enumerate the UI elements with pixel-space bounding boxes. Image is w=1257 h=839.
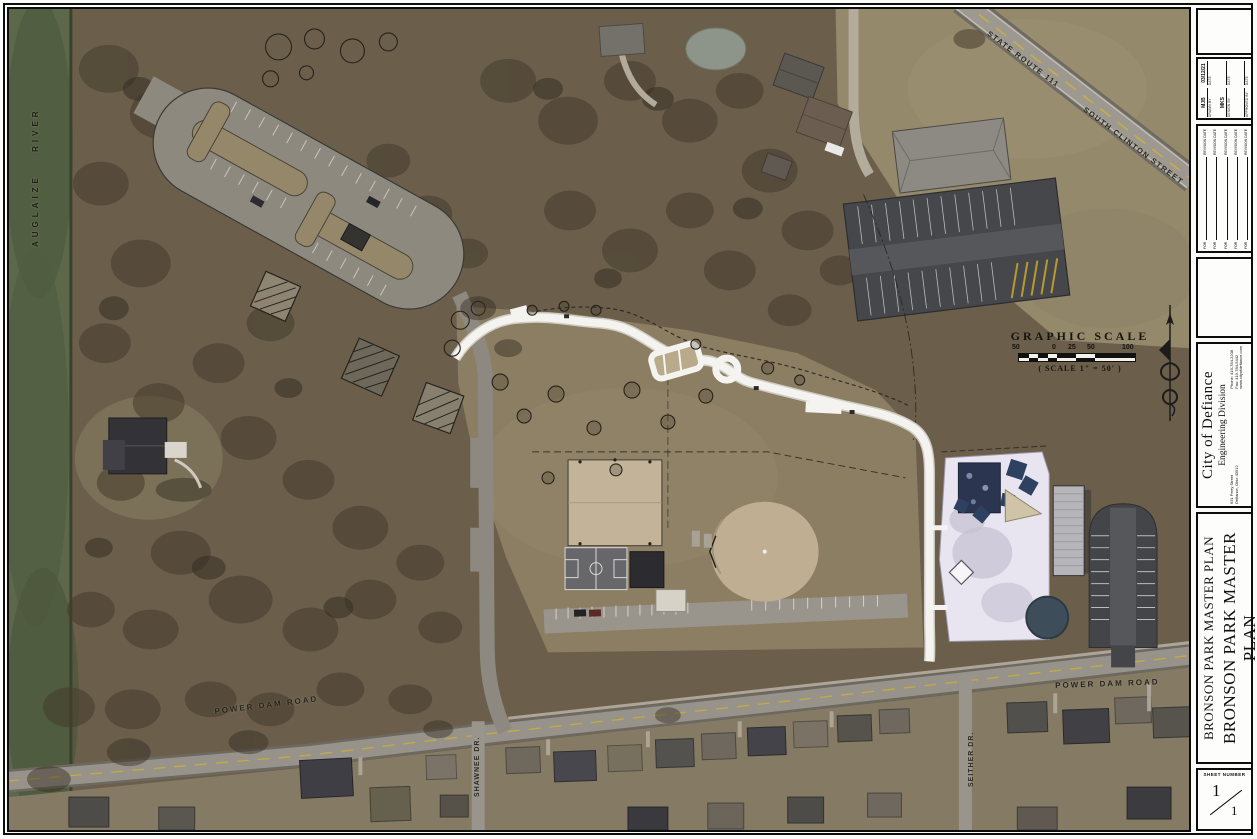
scale-note: ( SCALE 1" = 50' ) [1004, 364, 1156, 373]
aerial-plan-graphic [9, 9, 1189, 830]
sheet-title: BRONSON PARK MASTER PLAN [1220, 516, 1257, 760]
scale-tick: 50 [1087, 344, 1095, 351]
revision-row: FOR REVISION DATE [1202, 129, 1207, 249]
graphic-scale-bar [1018, 353, 1136, 362]
design-by-label: DESIGN BY [1226, 88, 1230, 117]
drawn-by-label: DRAWN BY [1208, 88, 1212, 117]
design-date-label: DATE [1226, 61, 1230, 85]
revision-for-label: FOR [1244, 241, 1248, 248]
drawn-by-value: MJB [1201, 88, 1208, 117]
titleblock-revisions-box: FOR REVISION DATE FOR REVISION DATE FOR … [1196, 124, 1253, 253]
scale-tick: 25 [1068, 344, 1076, 351]
revision-date-label: REVISION DATE [1203, 129, 1207, 155]
river-label: AUGLAIZE RIVER [31, 107, 40, 247]
drawn-by-row: MJB DRAWN BY 03/12/21 DATE [1201, 61, 1212, 117]
revision-line [1212, 156, 1217, 239]
agency-website: www.cityofdefiance.com [1239, 346, 1244, 389]
revision-line [1222, 156, 1227, 239]
design-by-value: MKS [1219, 88, 1226, 117]
sheet-number-denominator: 1 [1231, 803, 1238, 819]
graphic-scale: GRAPHIC SCALE 50 0 25 50 100 [1004, 329, 1156, 373]
scale-tick: 50 [1012, 344, 1020, 351]
commercial-parking-lot [843, 178, 1069, 321]
agency-address-line2: Defiance, Ohio 43512 [1234, 465, 1239, 504]
sheet-number-box: SHEET NUMBER 1 1 [1196, 768, 1253, 831]
titleblock-spare-box [1196, 8, 1253, 55]
north-arrow-icon [1155, 305, 1185, 421]
graphic-scale-title: GRAPHIC SCALE [1004, 329, 1156, 344]
titleblock-spare-box-2 [1196, 257, 1253, 338]
revision-for-label: FOR [1223, 241, 1227, 248]
titleblock-agency-box: City of Defiance Engineering Division 63… [1196, 342, 1253, 508]
sheet-number-numerator: 1 [1212, 781, 1221, 801]
revision-line [1243, 156, 1248, 239]
map-viewport: AUGLAIZE RIVER STATE ROUTE 111 SOUTH CLI… [7, 7, 1191, 832]
agency-address: 631 Perry Street Defiance, Ohio 43512 [1230, 465, 1244, 504]
drawn-date-label: DATE [1208, 61, 1212, 85]
revision-row: FOR REVISION DATE [1232, 129, 1237, 249]
agency-name: City of Defiance [1200, 346, 1217, 504]
revision-line [1202, 156, 1207, 239]
design-by-row: MKS DESIGN BY DATE [1219, 61, 1230, 117]
revision-row: FOR REVISION DATE [1222, 129, 1227, 249]
approved-date-label: DATE [1245, 61, 1249, 85]
agency-division: Engineering Division [1218, 346, 1228, 504]
approved-by-value [1238, 88, 1245, 117]
revision-line [1232, 156, 1237, 239]
graphic-scale-ticks: 50 0 25 50 100 [1004, 344, 1156, 353]
sheet-number-label: SHEET NUMBER [1198, 772, 1251, 777]
approved-by-row: APPROVED BY DATE [1238, 61, 1249, 117]
scale-tick: 0 [1052, 344, 1056, 351]
revision-for-label: FOR [1203, 241, 1207, 248]
approved-date-value [1238, 61, 1245, 85]
design-date-value [1219, 61, 1226, 85]
revision-for-label: FOR [1213, 241, 1217, 248]
revision-row: FOR REVISION DATE [1243, 129, 1248, 249]
revision-for-label: FOR [1233, 241, 1237, 248]
scale-tick: 100 [1122, 344, 1134, 351]
titleblock-credits-box: MJB DRAWN BY 03/12/21 DATE MKS DESIGN BY… [1196, 57, 1253, 120]
drawing-sheet: AUGLAIZE RIVER STATE ROUTE 111 SOUTH CLI… [0, 0, 1257, 839]
seither-drive-label: SEITHER DR. [968, 732, 975, 787]
revision-row: FOR REVISION DATE [1212, 129, 1217, 249]
project-title: BRONSON PARK MASTER PLAN [1201, 516, 1217, 760]
revision-date-label: REVISION DATE [1223, 129, 1227, 155]
revision-date-label: REVISION DATE [1244, 129, 1248, 155]
revision-date-label: REVISION DATE [1213, 129, 1217, 155]
shawnee-drive-label: SHAWNEE DR. [474, 737, 481, 797]
titleblock-titles-box: BRONSON PARK MASTER PLAN BRONSON PARK MA… [1196, 512, 1253, 764]
agency-contact-info: Phone: 419-784-2208 Fax: 419-784-5442 ww… [1230, 346, 1244, 389]
drawn-date-value: 03/12/21 [1201, 61, 1208, 85]
approved-by-label: APPROVED BY [1245, 88, 1249, 117]
revision-date-label: REVISION DATE [1233, 129, 1237, 155]
